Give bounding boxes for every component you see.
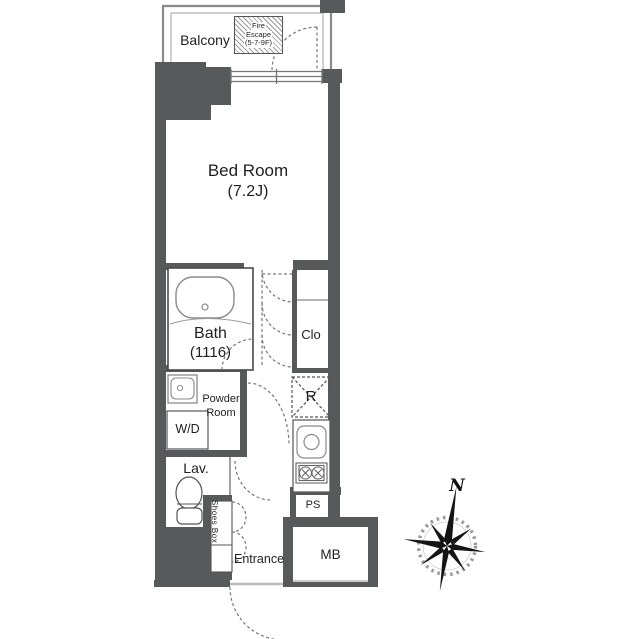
refrigerator-label: R [292, 388, 330, 405]
entrance-label: Entrance [230, 552, 288, 566]
wall-bedroom-bottom-right [293, 260, 340, 270]
balcony-label: Balcony [167, 32, 243, 48]
kitchen-counter [293, 420, 330, 492]
wall-closet-left [292, 270, 297, 368]
compass-star [396, 480, 495, 598]
wall-bottom [154, 580, 230, 587]
fire-escape-hatch: Fire Escape (5-7-9F) [234, 16, 283, 54]
powder-room-label-line1: Powder [195, 392, 247, 406]
wall-bottom-left-block [155, 527, 211, 580]
bedroom-label-name: Bed Room [168, 160, 328, 181]
washer-dryer-label: W/D [167, 422, 208, 436]
bath-label: Bath (1116) [168, 324, 253, 362]
bedroom-label-size: (7.2J) [168, 181, 328, 202]
wall-shoes-bottom [211, 572, 232, 580]
wall-powder-bottom [155, 450, 247, 457]
washbasin-icon [168, 375, 197, 403]
bath-label-size: (1116) [168, 343, 253, 362]
wall-balcony-right [322, 69, 342, 83]
toilet-icon [176, 477, 202, 524]
powder-room-label: Powder Room [195, 392, 247, 420]
shoes-box-label: Shoes Box [209, 499, 233, 545]
wall-closet-bottom [292, 368, 340, 373]
meter-box-label: MB [293, 547, 368, 563]
lavatory-label: Lav. [172, 460, 220, 476]
floor-plan-drawing [0, 0, 640, 639]
balcony-window [231, 69, 322, 84]
bedroom-label: Bed Room (7.2J) [168, 160, 328, 202]
compass-rose [396, 480, 495, 598]
fire-escape-label-line3: (5-7-9F) [244, 39, 273, 48]
shoes-box-label-line1: Shoes [210, 500, 219, 525]
floor-plan-page: Balcony Fire Escape (5-7-9F) Bed Room (7… [0, 0, 640, 639]
wall-top-right-cap [320, 0, 345, 13]
bath-label-name: Bath [168, 324, 253, 343]
powder-room-label-line2: Room [195, 406, 247, 420]
compass-north-label: N [444, 476, 470, 496]
pipe-space-label: PS [296, 499, 330, 512]
shoes-box-label-line2: Box [210, 528, 219, 543]
closet-label: Clo [292, 328, 330, 343]
